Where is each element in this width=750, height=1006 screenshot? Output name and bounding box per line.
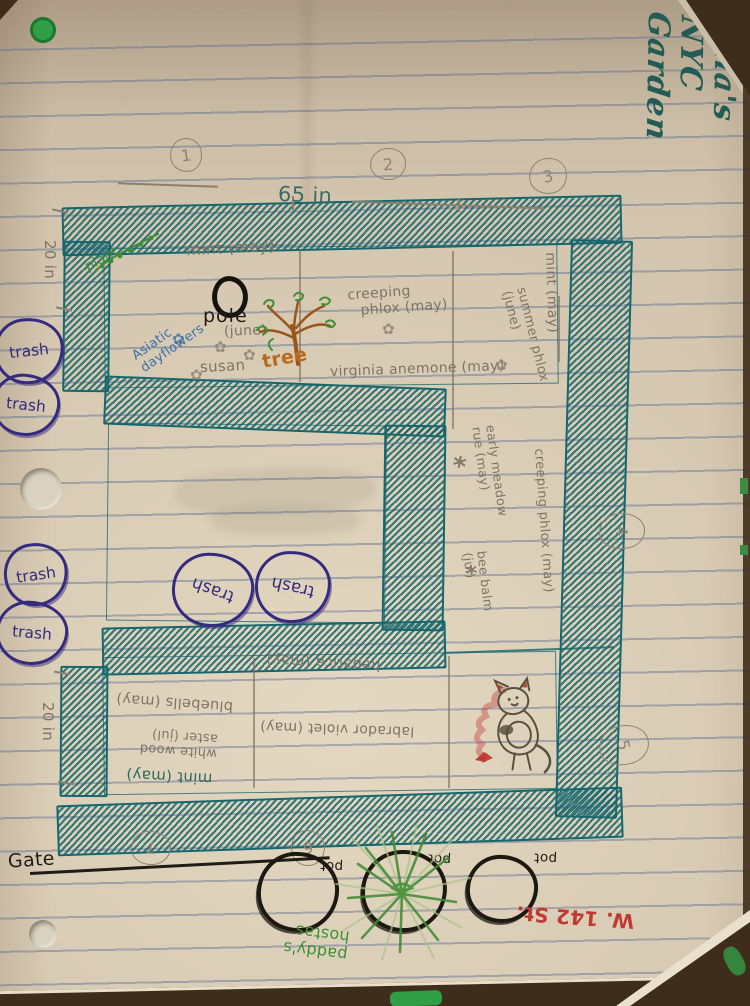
photo-background-edge [743, 80, 750, 940]
dimension-tick [458, 198, 460, 212]
trash-label: trash [5, 394, 47, 416]
dimension-left-upper-label: 20 in [41, 240, 58, 279]
bed-divider [448, 656, 450, 788]
hole-punch [20, 468, 62, 510]
hole-punch [29, 920, 57, 948]
plant-label-susan: susan [200, 357, 246, 376]
bed-divider [452, 251, 454, 429]
dimension-top-label: 65 in [278, 183, 333, 208]
trash-label: trash [269, 572, 316, 601]
marker-5-number: 5 [614, 738, 635, 752]
marker-4-number: 4 [612, 525, 632, 536]
trash-label: trash [15, 563, 57, 586]
trash-label: trash [11, 622, 52, 643]
marker-7-number: 7 [145, 838, 156, 858]
pot-label: pot [534, 849, 558, 865]
green-edge-bit [740, 545, 748, 555]
plant-label-mint-side: mint (may) [541, 252, 559, 333]
gate-label: Gate [7, 848, 55, 872]
trash-label: trash [8, 340, 50, 362]
green-edge-bit [740, 478, 748, 494]
pencil-flower-doodle [214, 338, 227, 356]
green-object-bit [390, 990, 442, 1006]
marker-2-number: 2 [382, 154, 393, 174]
trash-label: trash [189, 573, 237, 607]
pencil-flower-doodle [190, 366, 203, 384]
garden-plan-photo: 65 in 20 in 20 in 1 2 3 4 5 6 7 trash tr… [0, 0, 750, 1006]
dimension-left-lower-label: 20 in [39, 702, 56, 741]
hole-reinforcement-sticker [30, 17, 56, 43]
hostas-note: paddy's hostas [282, 920, 350, 963]
blue-flower-doodle [172, 330, 185, 348]
pencil-flower-doodle [495, 356, 508, 374]
bed-divider [253, 658, 255, 788]
marker-3-number: 3 [541, 166, 554, 186]
plant-label-whitewood-aster: white wood aster (jul) [139, 725, 218, 759]
wall-center-vertical [382, 425, 447, 632]
cat-doodle [481, 672, 569, 780]
pencil-flower-doodle [382, 320, 395, 338]
marker-1-number: 1 [180, 145, 193, 165]
star-doodle: * [465, 561, 479, 587]
plant-label-mint-bottom: mint (may) [126, 766, 213, 787]
wall-left-lower [60, 666, 109, 797]
